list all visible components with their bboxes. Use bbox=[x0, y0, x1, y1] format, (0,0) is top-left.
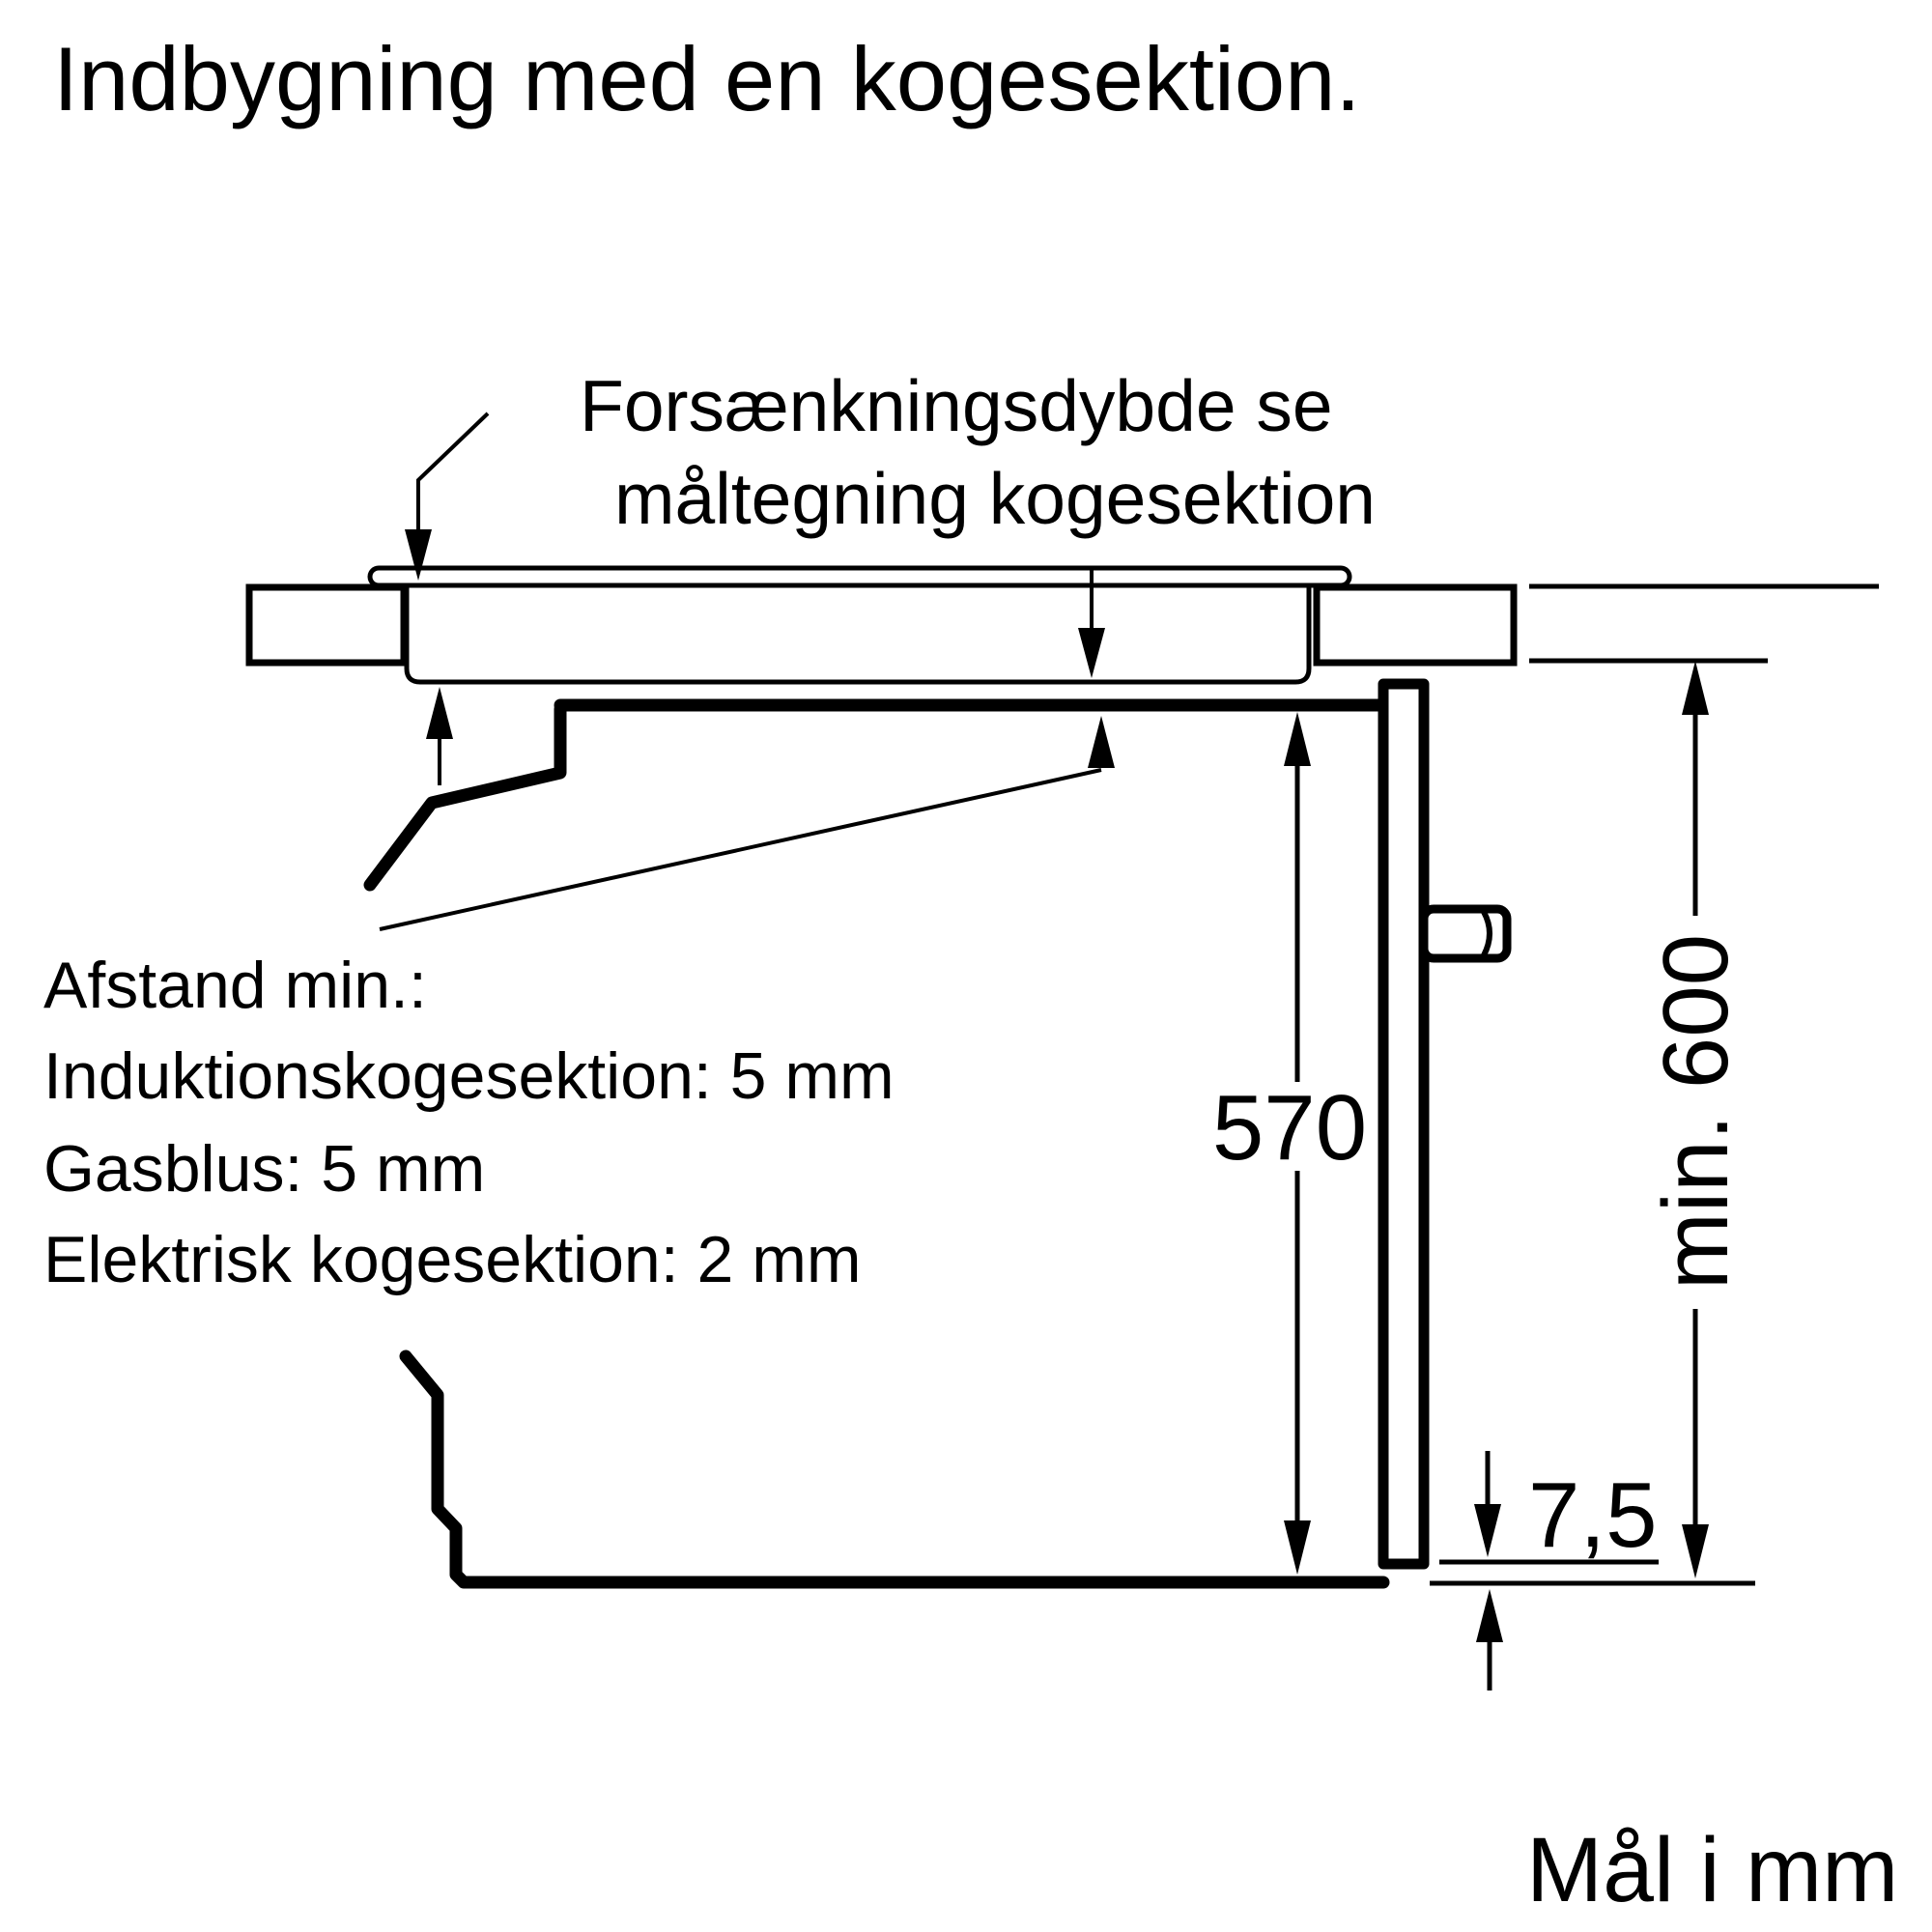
dim-570-top-arrowhead-icon bbox=[1284, 712, 1311, 766]
recess-leader-line bbox=[418, 413, 488, 533]
clearance-arrow-right-icon bbox=[1088, 716, 1115, 768]
hob-rim bbox=[370, 568, 1350, 585]
dim-570-bottom-arrowhead-icon bbox=[1284, 1520, 1311, 1575]
dim-75: 7,5 bbox=[1430, 1451, 1755, 1690]
recess-note-line-2: måltegning kogesektion bbox=[614, 458, 1376, 539]
hob-cross-section bbox=[370, 568, 1350, 682]
dim-min600-bottom-arrowhead-icon bbox=[1682, 1524, 1709, 1578]
clearance-callout bbox=[380, 687, 1115, 929]
dim-min600-label: min. 600 bbox=[1644, 934, 1747, 1290]
recess-note-line-1: Forsænkningsdybde se bbox=[580, 365, 1333, 446]
page-title: Indbygning med en kogesektion. bbox=[53, 28, 1361, 129]
dim-570-label: 570 bbox=[1212, 1076, 1367, 1179]
clearance-note: Afstand min.: Induktionskogesektion: 5 m… bbox=[43, 949, 895, 1296]
dim-min600-top-arrowhead-icon bbox=[1682, 661, 1709, 715]
units-note: Mål i mm bbox=[1526, 1819, 1898, 1921]
clearance-arrow-left-icon bbox=[426, 687, 453, 739]
dim-min600: min. 600 bbox=[1644, 661, 1747, 1578]
diagram-canvas: 570 min. 600 7,5 Indbygning med en koges… bbox=[0, 0, 1932, 1932]
clearance-note-line-1: Afstand min.: bbox=[43, 949, 427, 1022]
dim-75-label: 7,5 bbox=[1528, 1463, 1657, 1567]
worktop-left-section bbox=[249, 587, 404, 663]
worktop-right-section bbox=[1317, 587, 1514, 663]
clearance-note-line-2: Induktionskogesektion: 5 mm bbox=[43, 1039, 895, 1113]
dim-75-arrow-up-icon bbox=[1476, 1589, 1503, 1642]
clearance-note-line-4: Elektrisk kogesektion: 2 mm bbox=[43, 1223, 862, 1296]
clearance-note-line-3: Gasblus: 5 mm bbox=[43, 1132, 485, 1206]
hob-recess-tub bbox=[407, 585, 1309, 682]
dim-75-arrow-down-icon bbox=[1474, 1504, 1501, 1557]
recess-note: Forsænkningsdybde se måltegning kogesekt… bbox=[580, 365, 1376, 539]
oven-front-frame bbox=[1383, 684, 1424, 1564]
installation-diagram: 570 min. 600 7,5 Indbygning med en koges… bbox=[0, 0, 1932, 1932]
dim-570: 570 bbox=[1212, 712, 1367, 1575]
oven-vent-slope-line bbox=[370, 709, 560, 885]
oven-body-bottom-outline bbox=[406, 1356, 1383, 1582]
oven-control-knob bbox=[1424, 909, 1507, 958]
